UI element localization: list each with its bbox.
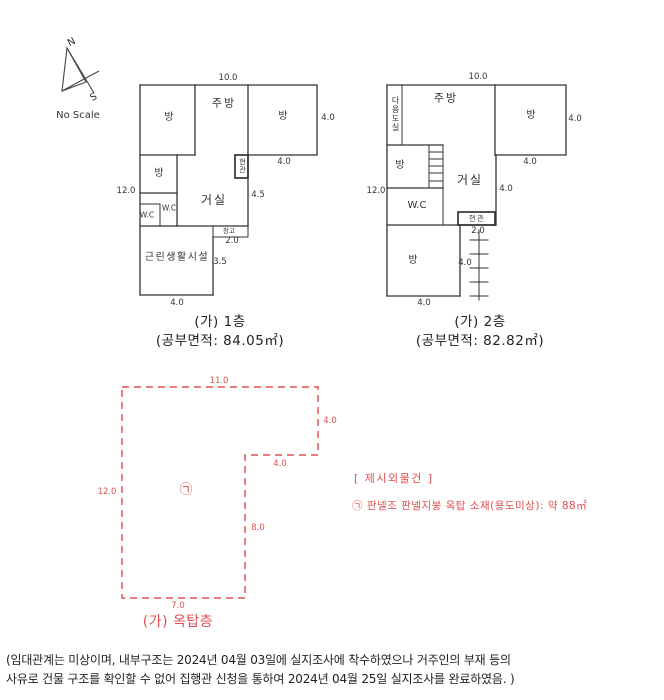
- rooftop-plan: [90, 370, 340, 615]
- floor1-storage-label: 창고: [223, 228, 235, 235]
- excluded-items-heading: [ 제시외물건 ]: [354, 470, 434, 486]
- floor2-caption-area: (공부면적: 82.82㎡): [360, 332, 600, 351]
- rooftop-dim-left: 12.0: [98, 488, 117, 497]
- appraisal-floorplan-sheet: N S No Scale 방 주방 방 현관 방 거실 W.C W.C 창고 근…: [0, 0, 664, 700]
- floor1-dim-right: 4.0: [321, 114, 335, 123]
- floor2-interior-stairs: [429, 152, 443, 181]
- rooftop-dim-notch: 4.0: [273, 460, 287, 469]
- floor1-living-label: 거실: [201, 194, 227, 206]
- survey-note-line2: 사유로 건물 구조를 확인할 수 없어 집행관 신청을 통하여 2024년 04…: [6, 670, 660, 689]
- floor1-dim-storage-depth: 2.0: [225, 237, 239, 246]
- floor2-dim-living-right: 4.0: [499, 185, 513, 194]
- floor2-dim-bottom: 4.0: [417, 299, 431, 308]
- floor1-dim-living-right: 4.5: [251, 191, 265, 200]
- floor1-room-top-left-label: 방: [164, 113, 173, 123]
- floor2-dim-stair-side: 4.0: [458, 259, 472, 268]
- rooftop-mark: ㉠: [179, 484, 192, 497]
- floor1-dim-tr-bottom: 4.0: [277, 158, 291, 167]
- floor1-dim-left: 12.0: [117, 187, 136, 196]
- rooftop-dim-right: 4.0: [323, 417, 337, 426]
- floor2-dim-tr-bottom: 4.0: [523, 158, 537, 167]
- floor2-room-top-right-label: 방: [526, 111, 535, 121]
- rooftop-dim-top: 11.0: [210, 377, 229, 386]
- rooftop-caption: (가) 옥탑층: [78, 613, 278, 632]
- floor1-dim-facility-right: 3.5: [213, 258, 227, 267]
- floor1-caption: (가) 1층 (공부면적: 84.05㎡): [100, 313, 340, 350]
- floor1-entrance-label: 현관: [239, 158, 246, 174]
- excluded-items-entry: ㉠ 판넬조 판넬지붕 옥탑 소재(용도미상): 약 88㎡: [352, 498, 587, 513]
- no-scale-label: No Scale: [56, 111, 100, 121]
- floor1-kitchen-label: 주방: [212, 98, 236, 109]
- floor1-dim-top: 10.0: [219, 74, 238, 83]
- floor1-facility-label: 근린생활시설: [145, 253, 209, 263]
- survey-note-line1: (임대관계는 미상이며, 내부구조는 2024년 04월 03일에 실지조사에 …: [6, 651, 660, 670]
- floor2-caption: (가) 2층 (공부면적: 82.82㎡): [360, 313, 600, 350]
- floor1-room-mid-left-label: 방: [154, 169, 163, 179]
- floor2-kitchen-label: 주방: [434, 93, 458, 104]
- floor2-room-mid-left-label: 방: [395, 161, 404, 171]
- floor2-wc-label: W.C: [408, 201, 427, 211]
- floor1-dim-bottom: 4.0: [170, 299, 184, 308]
- floor2-utility-label: 다용도실: [391, 96, 399, 132]
- floor2-dim-right: 4.0: [568, 115, 582, 124]
- survey-note: (임대관계는 미상이며, 내부구조는 2024년 04월 03일에 실지조사에 …: [6, 651, 660, 688]
- floor2-entrance-label: 현관: [469, 216, 485, 223]
- floor2-dim-entrance-depth: 2.0: [471, 227, 485, 236]
- floor1-room-top-right-label: 방: [278, 112, 287, 122]
- floor1-wc-inner-label: W.C: [140, 211, 154, 219]
- floor1-caption-title: (가) 1층: [100, 313, 340, 332]
- rooftop-dim-inner-right: 8.0: [251, 524, 265, 533]
- rooftop-dim-bottom: 7.0: [171, 602, 185, 611]
- floor2-room-bottom-label: 방: [408, 256, 417, 266]
- floor2-dim-top: 10.0: [469, 73, 488, 82]
- floor1-caption-area: (공부면적: 84.05㎡): [100, 332, 340, 351]
- floor2-dim-left: 12.0: [367, 187, 386, 196]
- floor1-wc-outer-label: W.C: [162, 204, 176, 212]
- floor2-caption-title: (가) 2층: [360, 313, 600, 332]
- floor2-living-label: 거실: [457, 174, 483, 186]
